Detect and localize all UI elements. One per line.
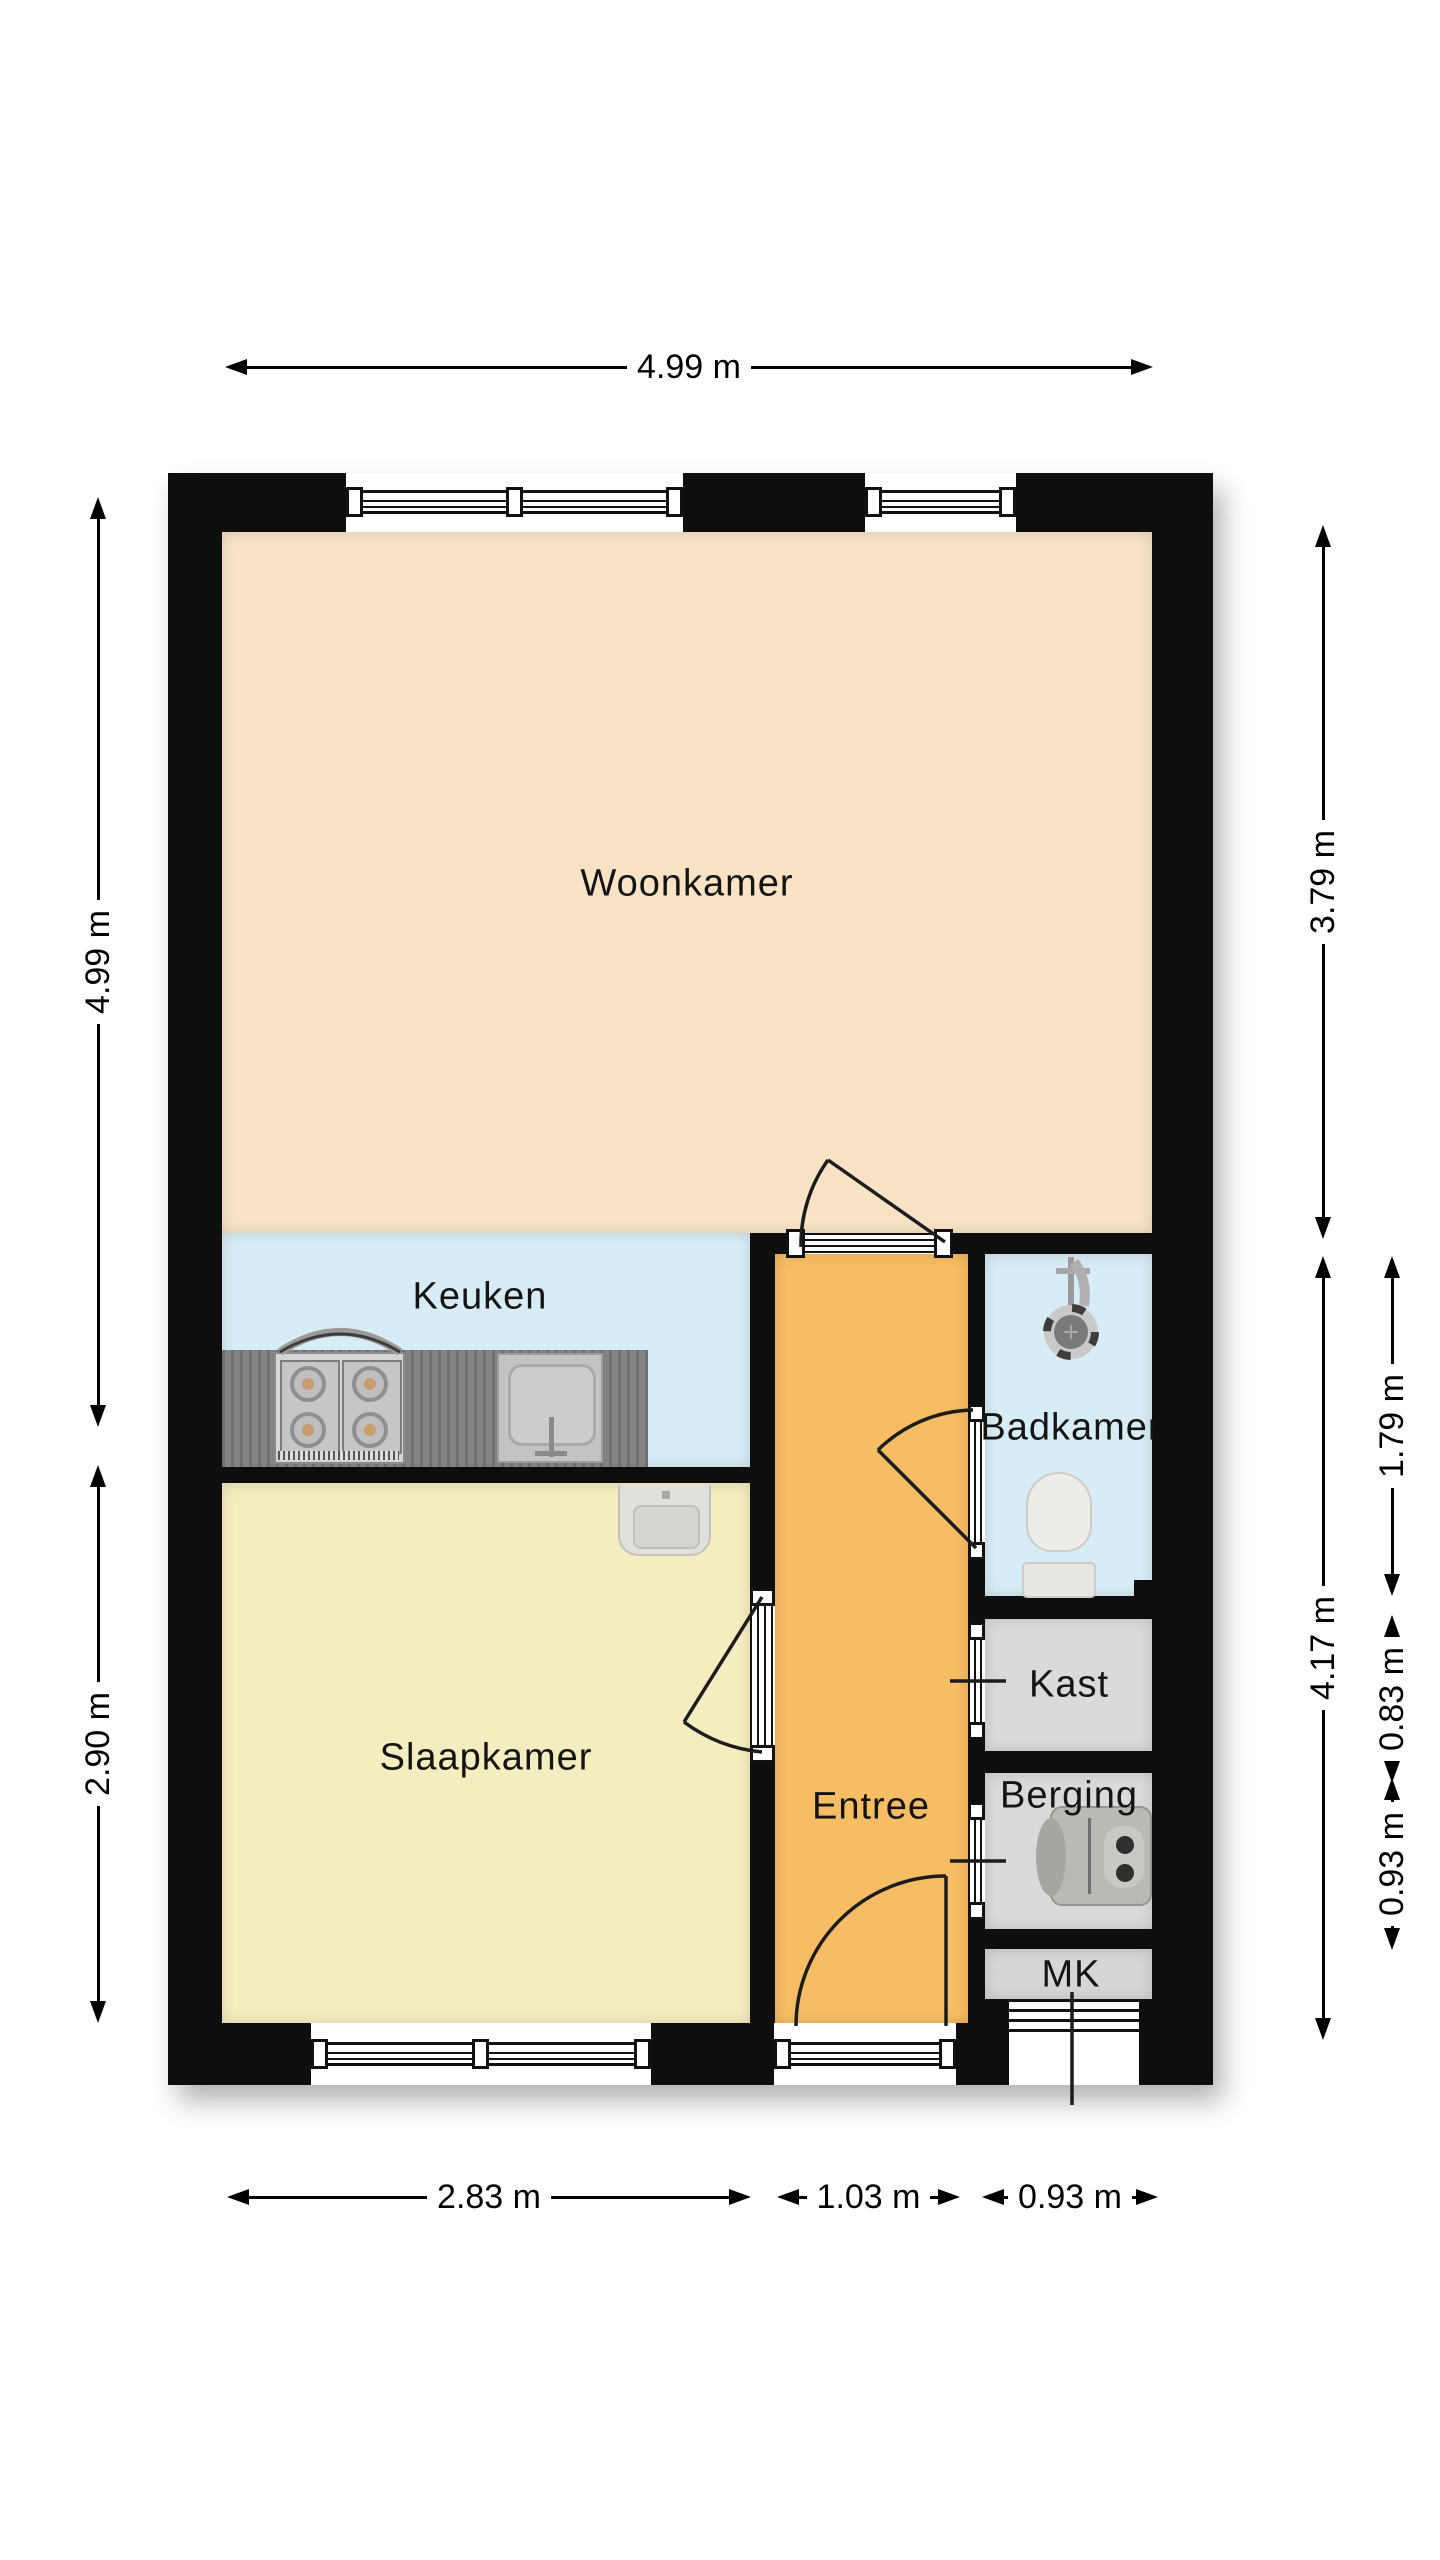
dimension-line [1391,1488,1394,1574]
dimension-value: 3.79 m [1304,820,1343,944]
arrowhead-right-icon [938,2189,960,2205]
door-entree-kast [968,1622,985,1740]
arrowhead-left-icon [777,2189,799,2205]
window-post [634,2039,651,2069]
dimension-line [97,1806,100,2001]
arrowhead-left-icon [227,2189,249,2205]
dimension-value: 4.17 m [1304,1586,1343,1710]
arrowhead-up-icon [90,1465,106,1487]
door-entree-woonkamer [788,1233,953,1254]
dimension-value: 4.99 m [79,900,118,1024]
arrowhead-up-icon [1315,1256,1331,1278]
window-mullion [506,487,523,517]
window-top-right [865,473,1016,532]
wall-mk-pier [985,1999,1009,2085]
wall-left [168,473,222,2085]
room-label-mk: MK [1042,1954,1101,1997]
window-post [346,487,363,517]
window-post [999,487,1016,517]
dimension-value: 0.93 m [1373,1802,1412,1926]
door-mk-opening [1009,1999,1139,2033]
burner-icon [352,1366,388,1402]
boiler-knob [1116,1836,1134,1854]
dimension-bottom-right-column: 0.93 m [982,2181,1158,2213]
dimension-bottom-entree: 1.03 m [777,2181,960,2213]
dimension-line [1391,1278,1394,1364]
door-post [968,1722,985,1740]
window-post [865,487,882,517]
dimension-line [249,2196,427,2199]
dimension-value: 4.99 m [627,348,751,387]
boiler-icon [1050,1806,1152,1906]
wall-right [1152,473,1213,2085]
wall-badkamer-stub [1134,1580,1152,1596]
dimension-line [930,2196,938,2199]
dimension-berging-height: 0.93 m [1376,1778,1408,1950]
dimension-value: 1.03 m [807,2178,931,2217]
wall-bottom-right-corner [1139,1999,1213,2085]
arrowhead-down-icon [1384,1928,1400,1950]
arrowhead-right-icon [729,2189,751,2205]
arrowhead-left-icon [982,2189,1004,2205]
door-post [774,2039,791,2069]
room-entree [775,1254,968,2023]
door-post [968,1542,985,1560]
arrowhead-down-icon [1384,1574,1400,1596]
room-label-woonkamer: Woonkamer [580,863,793,906]
door-threshold-glazing [776,2042,954,2066]
arrowhead-down-icon [1315,2018,1331,2040]
wall-kast-berging [985,1751,1152,1773]
washbasin-icon [618,1485,711,1556]
arrowhead-up-icon [1384,1256,1400,1278]
arrowhead-up-icon [90,497,106,519]
arrowhead-up-icon [1384,1778,1400,1800]
dimension-kast-height: 0.83 m [1376,1615,1408,1770]
arrowhead-up-icon [1315,525,1331,547]
door-post [939,2039,956,2069]
window-top-left [346,473,683,532]
door-post [968,1802,985,1820]
dimension-value: 0.83 m [1373,1637,1412,1761]
door-front-opening [774,2023,956,2085]
door-post [934,1229,953,1258]
dimension-line [751,366,1131,369]
dimension-value: 0.93 m [1008,2178,1132,2217]
room-label-berging: Berging [1000,1775,1138,1818]
window-post [311,2039,328,2069]
dimension-left-upper: 4.99 m [82,497,114,1427]
room-label-slaapkamer: Slaapkamer [380,1737,593,1780]
door-post [750,1588,775,1606]
boiler-seam [1088,1818,1091,1894]
dimension-line [1322,547,1325,820]
toilet-tank [1022,1562,1096,1598]
stove-vent [278,1451,399,1460]
dimension-badkamer-height: 1.79 m [1376,1256,1408,1596]
arrowhead-down-icon [90,2001,106,2023]
faucet-icon [662,1491,670,1499]
arrowhead-right-icon [1131,359,1153,375]
sink-icon [497,1353,603,1463]
burner-icon [290,1412,326,1448]
dimension-bottom-slaapkamer: 2.83 m [227,2181,751,2213]
dimension-top-width: 4.99 m [225,351,1153,383]
dimension-line [551,2196,729,2199]
window-slaapkamer [311,2023,651,2085]
door-post [786,1229,805,1258]
dimension-line [1322,944,1325,1217]
dimension-line [97,519,100,900]
window-post [666,487,683,517]
toilet-icon [1026,1472,1092,1552]
washbasin-basin [633,1505,700,1549]
stove-icon [274,1352,405,1464]
wall-berging-mk [985,1929,1152,1949]
floorplan-canvas: Woonkamer Keuken Slaapkamer Entree Badka… [0,0,1440,2560]
dimension-value: 2.90 m [79,1682,118,1806]
dimension-line [1322,1278,1325,1586]
room-label-entree: Entree [812,1786,930,1829]
wall-keuken-slaapkamer [222,1467,750,1483]
arrowhead-right-icon [1136,2189,1158,2205]
dimension-line [247,366,627,369]
window-mullion [472,2039,489,2069]
dimension-line [97,1024,100,1405]
dimension-value: 1.79 m [1373,1364,1412,1488]
dimension-line [97,1487,100,1682]
boiler-bulge [1036,1818,1066,1896]
door-post [750,1745,775,1763]
door-post [968,1902,985,1920]
dimension-value: 2.83 m [427,2178,551,2217]
arrowhead-down-icon [90,1405,106,1427]
burner-icon [290,1366,326,1402]
dimension-right-lower-total: 4.17 m [1307,1256,1339,2040]
door-entree-berging [968,1802,985,1920]
arrowhead-down-icon [1315,1217,1331,1239]
boiler-knob [1116,1864,1134,1882]
dimension-right-woonkamer: 3.79 m [1307,525,1339,1239]
door-post [968,1622,985,1640]
room-label-badkamer: Badkamer [980,1407,1161,1450]
dimension-left-lower: 2.90 m [82,1465,114,2023]
door-entree-slaapkamer [750,1588,775,1763]
burner-icon [352,1412,388,1448]
room-label-kast: Kast [1029,1664,1109,1707]
dimension-line [799,2196,807,2199]
room-label-keuken: Keuken [413,1276,548,1319]
wall-top [168,473,1213,532]
window-glazing [867,490,1014,514]
dimension-line [1322,1710,1325,2018]
wall-badkamer-kast [985,1596,1152,1619]
arrowhead-up-icon [1384,1615,1400,1637]
arrowhead-left-icon [225,359,247,375]
faucet-icon [535,1451,567,1456]
